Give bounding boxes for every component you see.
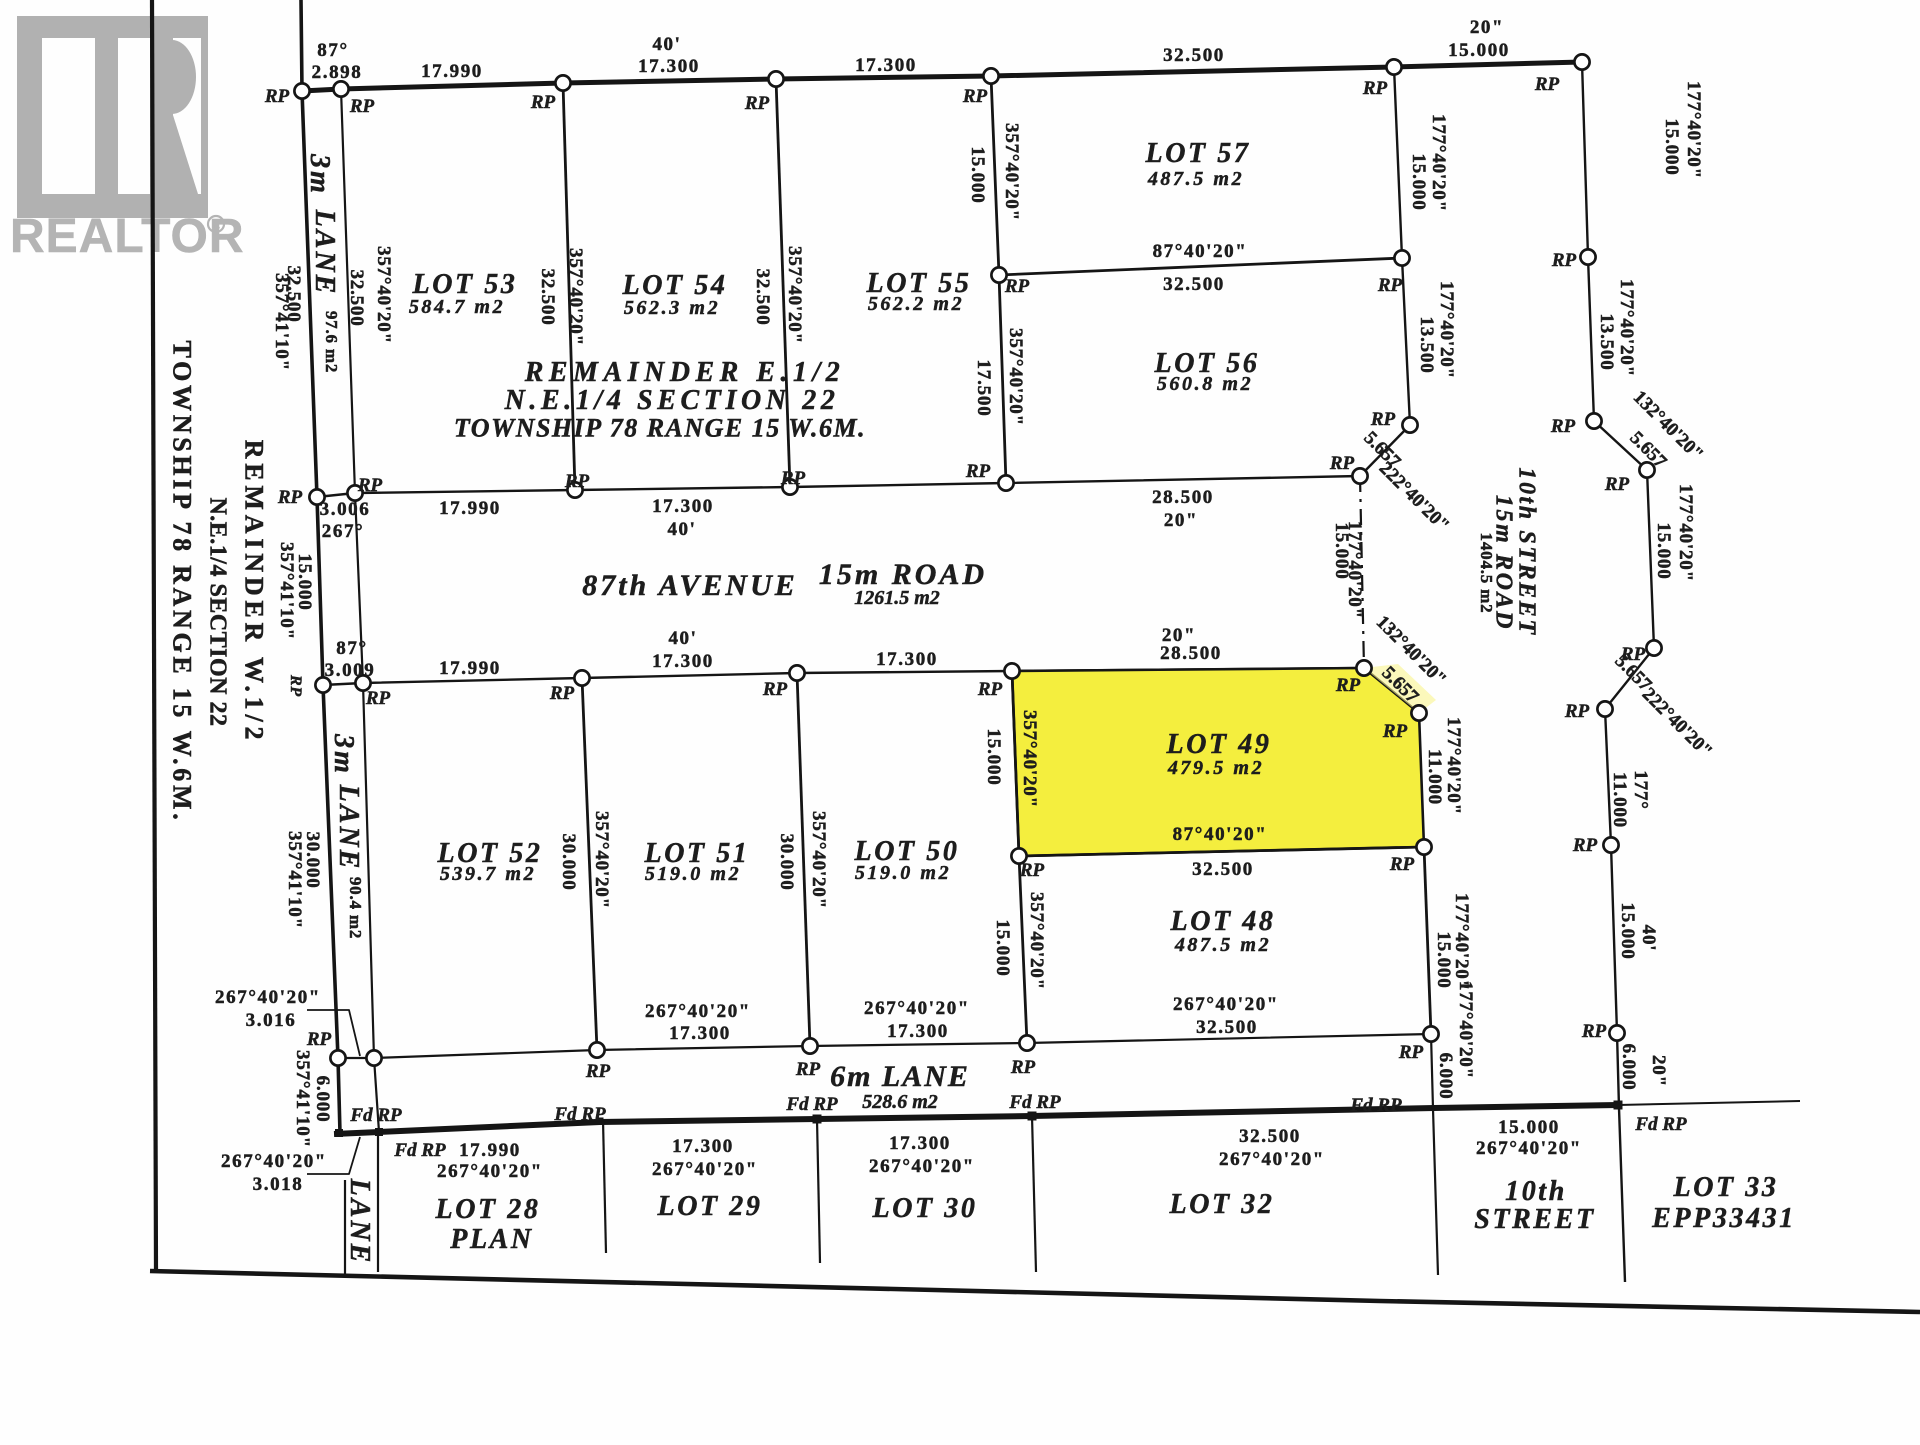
svg-text:RP: RP [1362, 78, 1388, 99]
svg-text:RP: RP [780, 468, 806, 489]
svg-text:LOT 57: LOT 57 [1144, 138, 1250, 169]
svg-text:560.8 m2: 560.8 m2 [1157, 373, 1253, 395]
svg-text:32.500: 32.500 [1163, 274, 1225, 295]
svg-text:357°40'20": 357°40'20" [591, 811, 612, 909]
svg-text:357°41'10": 357°41'10" [284, 831, 305, 929]
svg-text:357°40'20": 357°40'20" [808, 811, 829, 909]
svg-text:40': 40' [1638, 925, 1659, 952]
svg-text:519.0 m2: 519.0 m2 [645, 863, 741, 885]
svg-text:N.E.1/4 SECTION 22: N.E.1/4 SECTION 22 [504, 385, 840, 416]
svg-text:267°40'20": 267°40'20" [437, 1161, 543, 1182]
svg-text:RP: RP [306, 1029, 332, 1050]
svg-text:177°40'20": 177°40'20" [1344, 521, 1365, 619]
svg-text:40': 40' [668, 628, 697, 649]
svg-text:357°41'10": 357°41'10" [292, 1050, 313, 1148]
svg-text:6.000: 6.000 [1435, 1053, 1456, 1100]
svg-text:Fd RP: Fd RP [1008, 1092, 1061, 1113]
svg-text:97.6 m2: 97.6 m2 [322, 311, 341, 373]
svg-text:357°40'20": 357°40'20" [784, 246, 805, 344]
svg-text:15.000: 15.000 [1408, 153, 1429, 210]
svg-text:RP: RP [1581, 1021, 1607, 1042]
svg-text:REMAINDER W.1/2: REMAINDER W.1/2 [240, 440, 269, 745]
svg-text:562.3 m2: 562.3 m2 [624, 297, 720, 319]
svg-text:17.300: 17.300 [669, 1023, 731, 1044]
svg-text:RP: RP [1604, 474, 1630, 495]
svg-text:30.000: 30.000 [776, 833, 797, 890]
svg-text:2.898: 2.898 [312, 62, 363, 83]
svg-text:177°40'20": 177°40'20" [1683, 81, 1704, 179]
svg-text:RP: RP [1335, 675, 1361, 696]
svg-text:17.300: 17.300 [876, 649, 938, 670]
svg-text:32.500: 32.500 [1192, 859, 1254, 880]
svg-text:RP: RP [1389, 854, 1415, 875]
svg-text:LANE: LANE [344, 1178, 375, 1266]
svg-text:357°40'20": 357°40'20" [373, 246, 394, 344]
svg-text:20": 20" [1164, 510, 1198, 531]
svg-text:11.000: 11.000 [1424, 749, 1445, 805]
svg-text:3.018: 3.018 [253, 1174, 304, 1195]
svg-text:267°40'20": 267°40'20" [645, 1001, 751, 1022]
svg-text:RP: RP [1398, 1042, 1424, 1063]
svg-text:LOT 33: LOT 33 [1672, 1172, 1778, 1203]
svg-text:RP: RP [1329, 453, 1355, 474]
svg-text:LOT 28: LOT 28 [434, 1194, 540, 1225]
svg-text:28.500: 28.500 [1160, 643, 1222, 664]
svg-text:28.500: 28.500 [1152, 487, 1214, 508]
svg-text:357°40'20": 357°40'20" [1005, 328, 1026, 426]
svg-text:267°40'20": 267°40'20" [1219, 1149, 1325, 1170]
svg-text:RP: RP [564, 471, 590, 492]
svg-text:15.000: 15.000 [1653, 522, 1674, 579]
svg-text:3.006: 3.006 [320, 499, 371, 520]
svg-text:Fd RP: Fd RP [349, 1105, 402, 1126]
svg-text:539.7 m2: 539.7 m2 [440, 863, 536, 885]
svg-text:RP: RP [1382, 721, 1408, 742]
svg-text:357°41'10": 357°41'10" [276, 542, 297, 640]
svg-text:20": 20" [1648, 1055, 1669, 1087]
svg-text:1261.5 m2: 1261.5 m2 [854, 587, 940, 609]
svg-text:13.500: 13.500 [1596, 313, 1617, 370]
svg-text:584.7 m2: 584.7 m2 [409, 296, 505, 318]
svg-text:RP: RP [530, 92, 556, 113]
svg-text:90.4 m2: 90.4 m2 [346, 877, 365, 939]
svg-text:177°: 177° [1630, 770, 1651, 809]
svg-text:R: R [212, 219, 220, 231]
svg-text:RP: RP [1004, 276, 1030, 297]
svg-text:Fd RP: Fd RP [393, 1140, 446, 1161]
svg-text:LOT 49: LOT 49 [1165, 729, 1271, 760]
svg-text:RP: RP [277, 487, 303, 508]
svg-text:RP: RP [1572, 835, 1598, 856]
svg-text:357°40'20": 357°40'20" [1019, 710, 1040, 808]
svg-text:17.300: 17.300 [652, 651, 714, 672]
svg-text:15.000: 15.000 [1448, 40, 1510, 61]
svg-text:LOT 29: LOT 29 [656, 1191, 762, 1222]
svg-text:177°40'20": 177°40'20" [1451, 893, 1472, 991]
svg-text:LANE: LANE [309, 209, 340, 297]
svg-text:87th AVENUE: 87th AVENUE [582, 569, 798, 602]
svg-text:177°40'20": 177°40'20" [1675, 484, 1696, 582]
svg-text:PLAN: PLAN [449, 1224, 534, 1255]
svg-text:17.500: 17.500 [973, 359, 994, 416]
svg-text:RP: RP [962, 86, 988, 107]
svg-text:32.500: 32.500 [1239, 1126, 1301, 1147]
svg-text:3.009: 3.009 [325, 660, 376, 681]
svg-text:15.000: 15.000 [967, 146, 988, 203]
svg-text:87°: 87° [336, 638, 367, 659]
svg-text:487.5 m2: 487.5 m2 [1174, 934, 1271, 956]
svg-text:479.5 m2: 479.5 m2 [1167, 757, 1264, 779]
svg-text:267°40'20": 267°40'20" [864, 998, 970, 1019]
svg-text:32.500: 32.500 [1196, 1017, 1258, 1038]
svg-text:267°40'20": 267°40'20" [869, 1156, 975, 1177]
svg-text:RP: RP [762, 679, 788, 700]
svg-text:87°: 87° [317, 40, 348, 61]
svg-text:528.6 m2: 528.6 m2 [862, 1091, 938, 1113]
svg-text:RP: RP [795, 1059, 821, 1080]
svg-text:17.300: 17.300 [672, 1136, 734, 1157]
svg-text:6.000: 6.000 [1618, 1044, 1639, 1091]
svg-text:RP: RP [1551, 250, 1577, 271]
svg-text:17.300: 17.300 [855, 55, 917, 76]
svg-text:15.000: 15.000 [1661, 118, 1682, 175]
svg-text:32.500: 32.500 [1163, 45, 1225, 66]
svg-text:177°40'20": 177°40'20" [1443, 717, 1464, 815]
svg-text:6.000: 6.000 [312, 1076, 333, 1123]
svg-text:17.990: 17.990 [439, 658, 501, 679]
svg-text:Fd RP: Fd RP [553, 1104, 606, 1125]
svg-text:267°40'20": 267°40'20" [1476, 1138, 1582, 1159]
svg-text:1404.5 m2: 1404.5 m2 [1477, 533, 1496, 614]
svg-text:RP: RP [977, 679, 1003, 700]
svg-text:17.300: 17.300 [638, 56, 700, 77]
svg-text:3.016: 3.016 [246, 1010, 297, 1031]
svg-text:32.500: 32.500 [346, 269, 367, 326]
svg-text:357°40'20": 357°40'20" [1026, 892, 1047, 990]
svg-text:RP: RP [1564, 701, 1590, 722]
svg-text:RP: RP [965, 461, 991, 482]
svg-text:32.500: 32.500 [537, 268, 558, 325]
svg-text:177°40'20": 177°40'20" [1428, 114, 1449, 212]
svg-text:RP: RP [1019, 860, 1045, 881]
svg-text:RP: RP [1377, 275, 1403, 296]
svg-text:15.000: 15.000 [1498, 1117, 1560, 1138]
svg-text:15.000: 15.000 [1433, 931, 1454, 988]
svg-text:519.0 m2: 519.0 m2 [855, 862, 951, 884]
svg-text:87°40'20": 87°40'20" [1173, 824, 1268, 845]
svg-text:N.E.1/4 SECTION 22: N.E.1/4 SECTION 22 [204, 497, 230, 726]
svg-text:15m ROAD: 15m ROAD [819, 558, 987, 591]
svg-text:6m LANE: 6m LANE [830, 1060, 970, 1093]
svg-text:20": 20" [1470, 17, 1504, 38]
svg-text:TOWNSHIP 78 RANGE 15 W.6M.: TOWNSHIP 78 RANGE 15 W.6M. [168, 341, 197, 824]
svg-text:15.000: 15.000 [983, 728, 1004, 785]
svg-text:Fd RP: Fd RP [1634, 1114, 1687, 1135]
svg-text:Fd RP: Fd RP [785, 1094, 838, 1115]
svg-text:267°40'20": 267°40'20" [215, 987, 321, 1008]
svg-text:487.5 m2: 487.5 m2 [1147, 168, 1244, 190]
svg-text:15.000: 15.000 [1617, 902, 1638, 959]
svg-text:32.500: 32.500 [752, 268, 773, 325]
svg-text:177°40'20": 177°40'20" [1436, 281, 1457, 379]
svg-text:10th: 10th [1505, 1176, 1567, 1207]
svg-text:357°40'20": 357°40'20" [565, 248, 586, 346]
svg-text:562.2 m2: 562.2 m2 [868, 293, 964, 315]
svg-text:LOT 32: LOT 32 [1168, 1189, 1274, 1220]
svg-text:LOT 48: LOT 48 [1169, 906, 1275, 937]
svg-text:177°40'20": 177°40'20" [1616, 279, 1637, 377]
svg-text:17.990: 17.990 [439, 498, 501, 519]
svg-text:EPP33431: EPP33431 [1651, 1203, 1796, 1234]
svg-text:Fd RP: Fd RP [1349, 1095, 1402, 1116]
svg-text:267°: 267° [322, 521, 365, 542]
svg-text:3m: 3m [304, 153, 335, 196]
svg-text:LOT 30: LOT 30 [871, 1193, 977, 1224]
svg-text:17.300: 17.300 [889, 1133, 951, 1154]
svg-text:TOWNSHIP 78 RANGE 15 W.6M.: TOWNSHIP 78 RANGE 15 W.6M. [454, 413, 866, 442]
svg-text:RP: RP [549, 683, 575, 704]
svg-text:40': 40' [667, 519, 696, 540]
svg-text:267°40'20": 267°40'20" [652, 1159, 758, 1180]
svg-text:3m: 3m [328, 733, 359, 776]
svg-text:17.990: 17.990 [421, 61, 483, 82]
svg-text:RP: RP [744, 93, 770, 114]
svg-text:REMAINDER E.1/2: REMAINDER E.1/2 [524, 357, 846, 388]
svg-text:17.300: 17.300 [887, 1021, 949, 1042]
svg-text:RP: RP [1534, 74, 1560, 95]
svg-text:RP: RP [365, 688, 391, 709]
svg-text:30.000: 30.000 [558, 833, 579, 890]
svg-text:17.990: 17.990 [459, 1140, 521, 1161]
svg-text:STREET: STREET [1474, 1204, 1595, 1235]
svg-text:RP: RP [349, 96, 375, 117]
svg-text:87°40'20": 87°40'20" [1153, 241, 1248, 262]
svg-text:267°40'20": 267°40'20" [221, 1151, 327, 1172]
svg-text:177°40'20": 177°40'20" [1455, 981, 1476, 1079]
svg-text:40': 40' [652, 34, 681, 55]
svg-text:LANE: LANE [333, 784, 364, 872]
svg-text:357°40'20": 357°40'20" [1001, 123, 1022, 221]
svg-text:15.000: 15.000 [992, 919, 1013, 976]
svg-text:11.000: 11.000 [1609, 772, 1630, 828]
svg-text:RP: RP [264, 86, 290, 107]
svg-text:RP: RP [357, 475, 383, 496]
svg-text:267°40'20": 267°40'20" [1173, 994, 1279, 1015]
svg-text:13.500: 13.500 [1416, 316, 1437, 373]
svg-text:357°41'10": 357°41'10" [271, 273, 292, 371]
svg-text:RP: RP [287, 674, 304, 697]
svg-text:RP: RP [1010, 1057, 1036, 1078]
svg-text:RP: RP [585, 1061, 611, 1082]
svg-text:17.300: 17.300 [652, 496, 714, 517]
svg-text:RP: RP [1550, 416, 1576, 437]
